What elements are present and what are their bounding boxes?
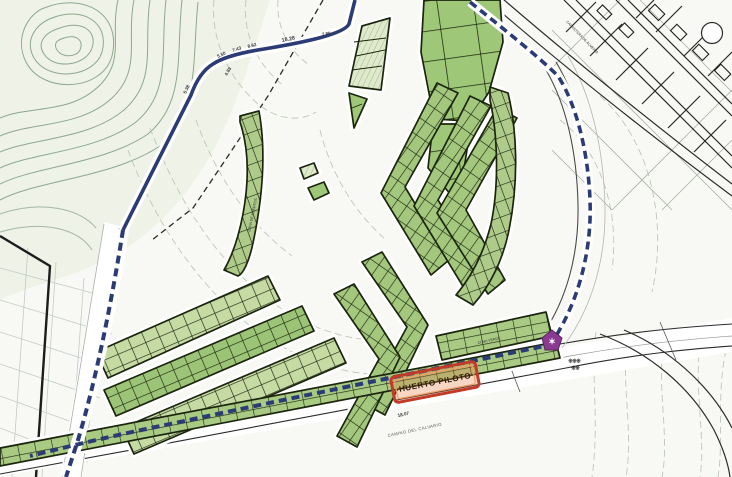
- marker-glyph: ✶: [548, 337, 556, 347]
- site-plan-map: HUERTO PILOTO ✶ ❋❋❋ ❋❋ 5.38 5.50 7.43 8.…: [0, 0, 732, 477]
- svg-text:❋❋❋: ❋❋❋: [568, 358, 581, 365]
- roundabout-icon: [702, 23, 723, 44]
- svg-text:❋❋: ❋❋: [571, 365, 580, 372]
- map-canvas: HUERTO PILOTO ✶ ❋❋❋ ❋❋ 5.38 5.50 7.43 8.…: [0, 0, 732, 477]
